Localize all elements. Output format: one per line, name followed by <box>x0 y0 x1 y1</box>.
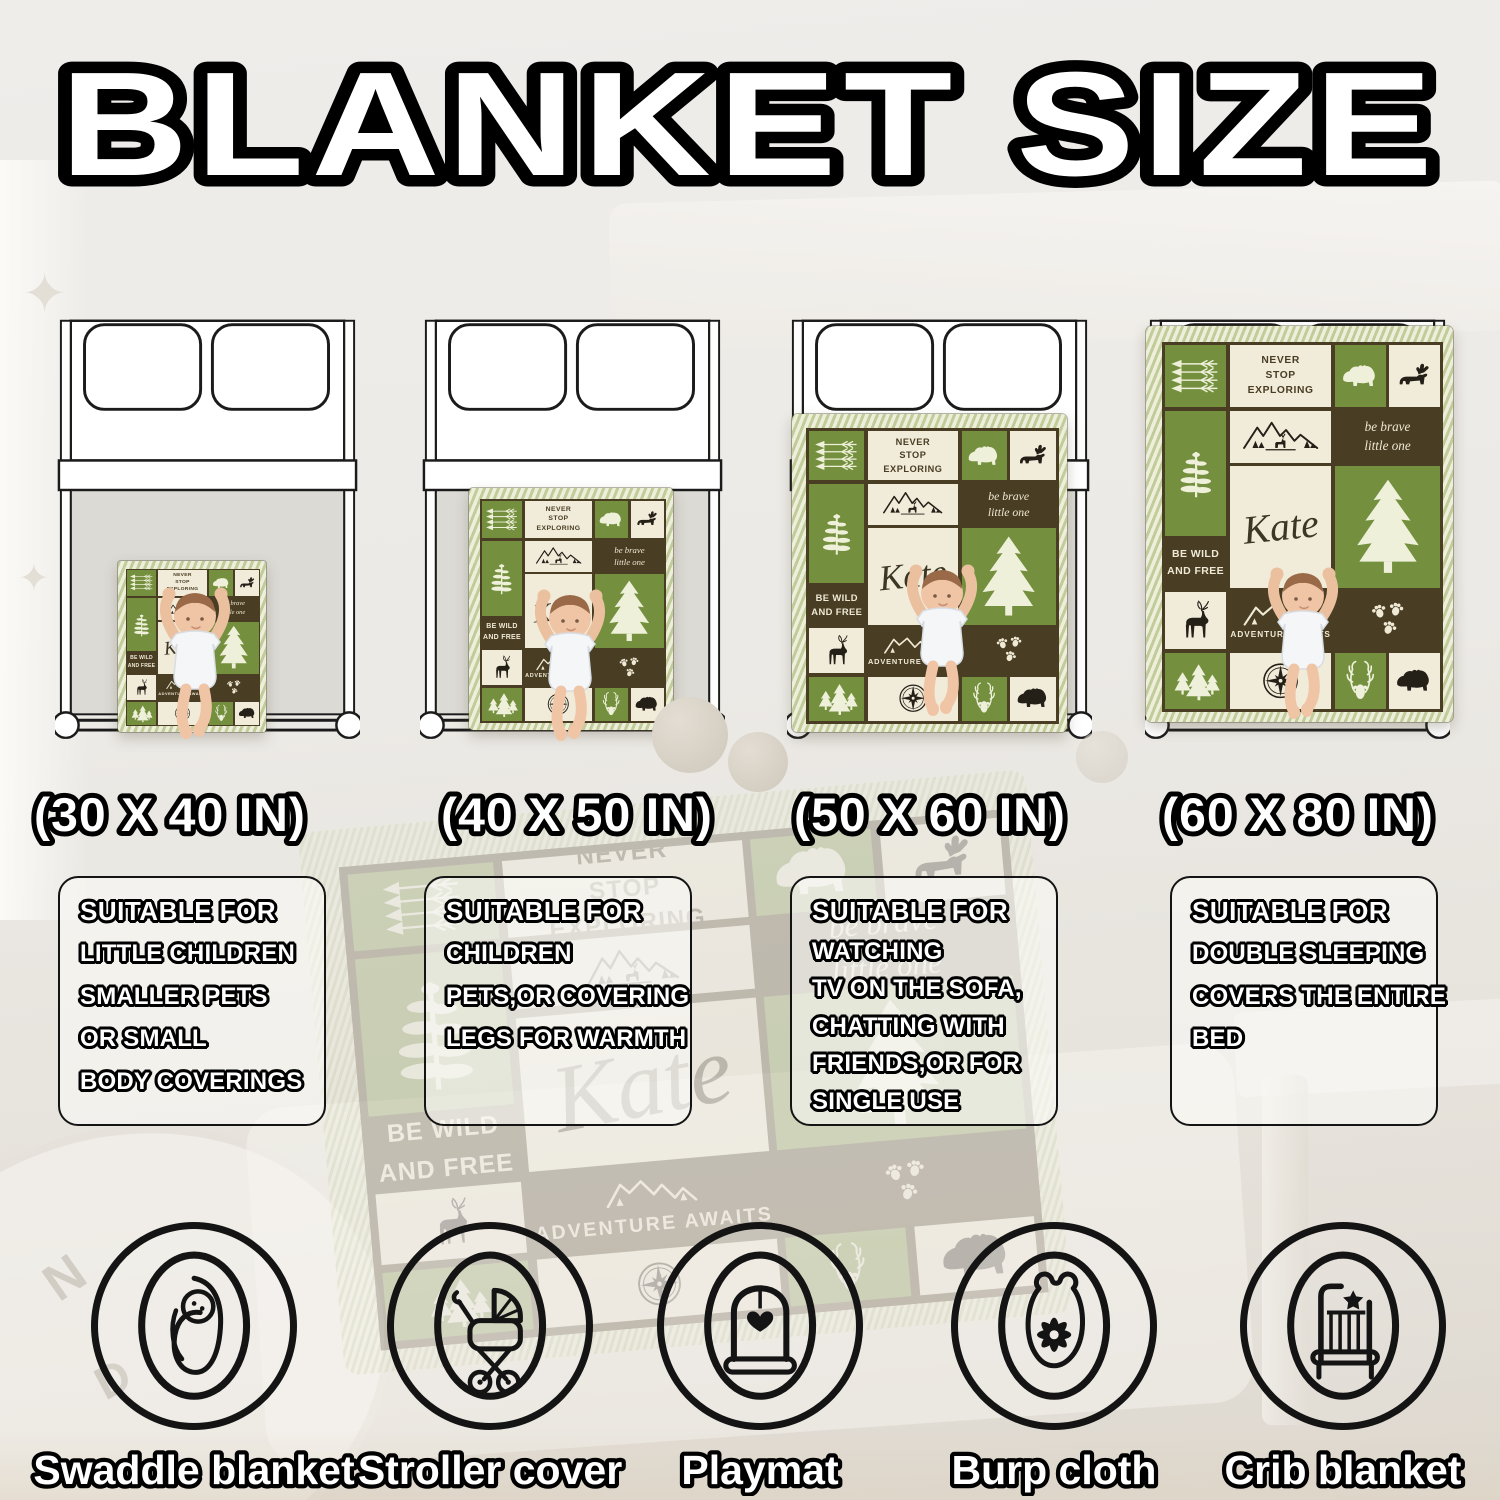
forest-icon <box>814 681 860 715</box>
quilt-panel-bear <box>595 501 629 539</box>
pine-tree-icon <box>1174 415 1218 531</box>
black-bear-icon <box>1393 659 1436 703</box>
suitable-line: LITTLE CHILDREN <box>80 933 306 976</box>
be-wild-text: BE WILD AND FREE <box>811 591 862 620</box>
bear-icon <box>1339 352 1382 401</box>
suitable-box-60x80: SUITABLE FOR DOUBLE SLEEPING COVERS THE … <box>1170 876 1438 1126</box>
stroller-icon <box>421 1250 559 1401</box>
svg-text:(40 X 50 IN): (40 X 50 IN) <box>441 788 713 841</box>
arrows-icon <box>815 438 859 473</box>
quilt-panel-be-brave: be brave little one <box>595 541 665 572</box>
swaddle-icon <box>125 1250 263 1401</box>
star-decoration: ✦ <box>18 556 50 600</box>
quilt-panel-deer <box>809 628 864 673</box>
be-wild-text: BE WILD AND FREE <box>483 622 521 644</box>
forest-icon <box>485 691 519 717</box>
suitable-heading: SUITABLE FOR <box>446 896 672 927</box>
mountain-deer-icon <box>527 545 590 568</box>
arrows-icon <box>1171 354 1220 399</box>
bear-icon <box>965 437 1003 475</box>
svg-text:Playmat: Playmat <box>681 1447 839 1493</box>
suitable-line: CHATTING WITH <box>812 1008 1038 1045</box>
blanket-size-infographic: ✦ ✦ ✦ N D NEVER STOP EXPLORING be brave … <box>0 0 1500 1500</box>
suitable-line: COVERS THE ENTIRE <box>1192 976 1418 1019</box>
suitable-line: SMALLER PETS <box>80 976 306 1019</box>
suitable-heading: SUITABLE FOR <box>80 896 306 927</box>
moose-icon <box>1393 352 1436 401</box>
baby-figure <box>889 549 995 717</box>
forest-icon <box>1170 659 1222 703</box>
svg-text:Burp cloth: Burp cloth <box>952 1447 1157 1493</box>
quilt-panel-be-wild: BE WILD AND FREE <box>809 586 864 625</box>
playmat-letter: N <box>32 1243 97 1314</box>
black-bear-icon <box>1014 681 1052 715</box>
deer-icon <box>814 633 860 668</box>
suitable-line: BED <box>1192 1018 1418 1061</box>
baby-figure <box>142 572 248 740</box>
deer-icon <box>1170 598 1222 643</box>
suitable-line: CHILDREN <box>446 933 672 976</box>
quilt-panel-black-bear <box>1389 653 1440 709</box>
use-label-crib: Crib blanket <box>1163 1444 1500 1496</box>
be-wild-text: BE WILD AND FREE <box>1167 547 1224 580</box>
moose-icon <box>633 505 661 534</box>
quilt-panel-pine-tree <box>809 484 864 583</box>
playmat-icon <box>691 1250 829 1401</box>
quilt-panel-arrows <box>809 431 864 480</box>
burp-cloth-icon <box>985 1250 1123 1401</box>
quilt-panel-paw-prints <box>778 1137 1033 1229</box>
suitable-box-50x60: SUITABLE FOR WATCHING TV ON THE SOFA, CH… <box>790 876 1058 1126</box>
moose-icon <box>1014 437 1052 475</box>
quilt-panel-mountains <box>868 484 959 525</box>
crib-icon <box>1274 1250 1412 1401</box>
suitable-line: LEGS FOR WARMTH <box>446 1018 672 1061</box>
quilt-panel-mountains <box>1230 411 1331 463</box>
never-stop-text: NEVER STOP EXPLORING <box>537 505 581 535</box>
paw-prints-icon <box>822 1153 990 1213</box>
quilt-panel-pine-tree <box>1165 411 1226 536</box>
be-brave-text: be brave little one <box>1364 418 1410 455</box>
quilt-panel-be-brave: be brave little one <box>962 484 1056 525</box>
use-crib <box>1240 1222 1446 1430</box>
personalized-name: Kate <box>1241 503 1321 551</box>
svg-text:(50 X 60 IN): (50 X 60 IN) <box>794 788 1066 841</box>
use-stroller <box>387 1222 593 1430</box>
never-stop-text: NEVER STOP EXPLORING <box>883 436 942 476</box>
quilt-panel-be-wild: BE WILD AND FREE <box>1165 539 1226 588</box>
suitable-line: FRIENDS,OR FOR <box>812 1045 1038 1082</box>
suitable-heading: SUITABLE FOR <box>1192 896 1418 927</box>
fir-tree-icon <box>1347 472 1429 582</box>
quilt-panel-never-stop: NEVER STOP EXPLORING <box>1230 345 1331 407</box>
pompom-decoration <box>652 697 728 773</box>
be-brave-text: be brave little one <box>988 488 1030 521</box>
quilt-panel-never-stop: NEVER STOP EXPLORING <box>868 431 959 480</box>
suitable-line: TV ON THE SOFA, <box>812 970 1038 1007</box>
quilt-panel-moose <box>1389 345 1440 407</box>
paw-prints-icon <box>1353 602 1422 639</box>
quilt-panel-moose <box>631 501 665 539</box>
suitable-box-40x50: SUITABLE FOR CHILDREN PETS,OR COVERING L… <box>424 876 692 1126</box>
pine-tree-icon <box>817 487 857 579</box>
suitable-line: BODY COVERINGS <box>80 1061 306 1104</box>
svg-text:Crib blanket: Crib blanket <box>1225 1447 1462 1493</box>
bear-icon <box>597 505 625 534</box>
page-title: BLANKET SIZE <box>60 42 1440 207</box>
suitable-line: WATCHING <box>812 933 1038 970</box>
arrows-icon <box>486 506 519 533</box>
use-playmat <box>657 1222 863 1430</box>
suitable-line: PETS,OR COVERING <box>446 976 672 1019</box>
mountain-deer-icon <box>870 489 955 519</box>
quilt-panel-deer <box>1165 592 1226 650</box>
svg-text:(60 X 80 IN): (60 X 80 IN) <box>1162 788 1434 841</box>
use-swaddle <box>91 1222 297 1430</box>
size-label-60x80: (60 X 80 IN) <box>1146 782 1451 848</box>
mountain-deer-icon <box>1233 418 1328 456</box>
baby-figure <box>517 574 623 742</box>
size-label-30x40: (30 X 40 IN) <box>18 782 323 848</box>
pine-tree-icon <box>487 543 516 613</box>
quilt-panel-arrows <box>482 501 523 539</box>
quilt-panel-moose <box>1010 431 1055 480</box>
suitable-heading: SUITABLE FOR <box>812 896 1038 927</box>
suitable-line: OR SMALL <box>80 1018 306 1061</box>
quilt-panel-never-stop: NEVER STOP EXPLORING <box>525 501 592 539</box>
size-label-50x60: (50 X 60 IN) <box>778 782 1083 848</box>
suitable-box-30x40: SUITABLE FOR LITTLE CHILDREN SMALLER PET… <box>58 876 326 1126</box>
quilt-panel-bear <box>1335 345 1386 407</box>
never-stop-text: NEVER STOP EXPLORING <box>1248 354 1314 399</box>
baby-figure <box>1250 552 1356 720</box>
quilt-panel-be-brave: be brave little one <box>1335 411 1440 463</box>
size-label-40x50: (40 X 50 IN) <box>425 782 730 848</box>
svg-text:Swaddle blanket: Swaddle blanket <box>33 1447 355 1493</box>
suitable-line: SINGLE USE <box>812 1083 1038 1120</box>
quilt-panel-bear <box>962 431 1007 480</box>
quilt-panel-forest <box>809 677 864 721</box>
quilt-panel-forest <box>1165 653 1226 709</box>
svg-text:(30 X 40 IN): (30 X 40 IN) <box>34 788 306 841</box>
pompom-decoration <box>1076 731 1128 783</box>
quilt-panel-mountains <box>525 541 592 572</box>
title-banner: BLANKET SIZE <box>0 20 1500 225</box>
deer-icon <box>485 654 519 681</box>
be-brave-text: be brave little one <box>614 544 645 569</box>
use-burp-cloth <box>951 1222 1157 1430</box>
suitable-line: DOUBLE SLEEPING <box>1192 933 1418 976</box>
quilt-panel-black-bear <box>1010 677 1055 721</box>
quilt-panel-arrows <box>1165 345 1226 407</box>
